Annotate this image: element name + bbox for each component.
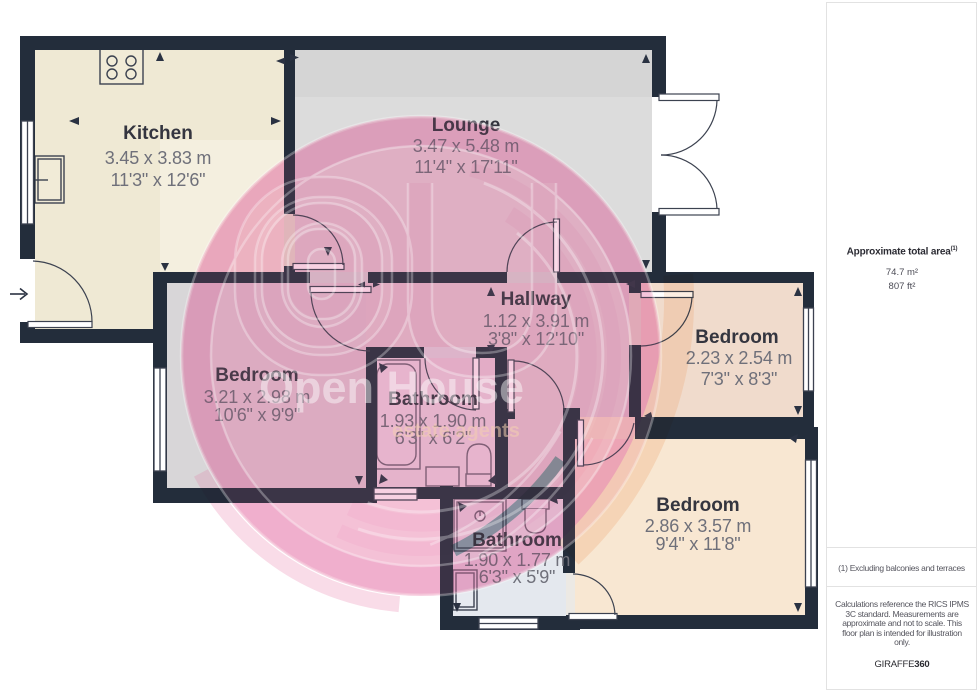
svg-text:estate agents: estate agents xyxy=(392,420,520,442)
svg-text:2.86 x 3.57 m: 2.86 x 3.57 m xyxy=(645,516,751,536)
svg-text:3.45 x 3.83 m: 3.45 x 3.83 m xyxy=(105,148,211,168)
svg-text:Kitchen: Kitchen xyxy=(123,123,193,144)
svg-text:Open House: Open House xyxy=(259,362,524,413)
svg-text:11'3" x 12'6": 11'3" x 12'6" xyxy=(111,170,206,190)
svg-text:Bedroom: Bedroom xyxy=(695,327,778,348)
svg-text:Bedroom: Bedroom xyxy=(656,495,739,516)
svg-text:7'3" x 8'3": 7'3" x 8'3" xyxy=(701,369,778,389)
svg-text:2.23 x 2.54 m: 2.23 x 2.54 m xyxy=(686,348,792,368)
svg-text:9'4" x 11'8": 9'4" x 11'8" xyxy=(656,534,741,554)
